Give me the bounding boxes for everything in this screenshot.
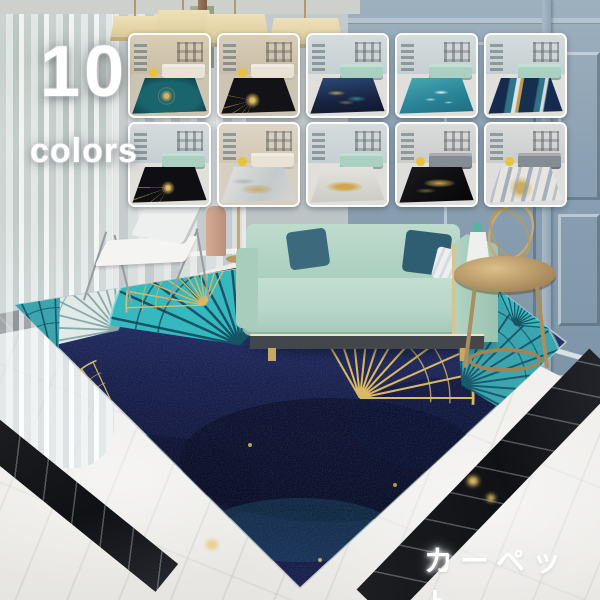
chair-leg	[196, 228, 211, 301]
lamp-cord	[234, 0, 236, 15]
thumb-chair	[416, 157, 425, 166]
thumb-chair	[238, 68, 247, 77]
thumb-wall-art	[177, 131, 204, 150]
thumb-wall-art	[444, 42, 471, 61]
variant-thumbnail-4	[395, 33, 478, 118]
thumb-wall-art	[444, 131, 471, 150]
lamp-cord	[304, 0, 306, 19]
thumb-sofa	[251, 153, 294, 168]
thumb-wall-art	[355, 42, 382, 61]
thumb-rug	[399, 167, 473, 203]
thumb-rug	[132, 167, 206, 203]
variant-thumbnail-9	[395, 122, 478, 207]
variant-thumbnail-grid	[128, 33, 568, 207]
thumb-window	[223, 130, 236, 161]
thumb-window	[401, 130, 414, 161]
thumb-sofa	[340, 64, 383, 79]
thumb-wall-art	[266, 42, 293, 61]
variant-thumbnail-3	[306, 33, 389, 118]
sofa-seat	[242, 278, 470, 336]
thumb-wall-art	[533, 42, 560, 61]
variant-thumbnail-6	[128, 122, 211, 207]
thumb-sofa	[429, 153, 472, 168]
thumb-rug	[399, 78, 473, 114]
variant-thumbnail-5	[484, 33, 567, 118]
variant-thumbnail-8	[306, 122, 389, 207]
thumb-sofa	[251, 64, 294, 79]
thumb-sofa	[340, 153, 383, 168]
floor-light-glint	[486, 494, 496, 502]
thumb-rug	[310, 167, 384, 203]
thumb-window	[490, 130, 503, 161]
variant-thumbnail-10	[484, 122, 567, 207]
color-count-badge: 10 colors	[30, 36, 138, 171]
teal-pillow	[286, 227, 331, 270]
variant-thumbnail-2	[217, 33, 300, 118]
floor-light-glint	[466, 476, 480, 486]
table-top	[454, 256, 556, 292]
thumb-rug	[221, 167, 295, 203]
accent-chair	[84, 198, 216, 308]
thumb-sofa	[162, 153, 205, 168]
thumb-sofa	[162, 64, 205, 79]
thumb-sofa	[429, 64, 472, 79]
lamp-cord	[182, 0, 184, 11]
product-caption: カーペット	[424, 538, 600, 600]
variant-thumbnail-7	[217, 122, 300, 207]
thumb-rug	[221, 78, 295, 114]
thumb-sofa	[518, 64, 561, 79]
thumb-rug	[132, 78, 206, 114]
sofa-leg	[268, 348, 276, 361]
thumb-wall-art	[177, 42, 204, 61]
color-count-number: 10	[40, 36, 138, 108]
thumb-rug	[488, 167, 562, 203]
color-count-label: colors	[30, 132, 138, 171]
product-photo: 10 colors カーペット	[0, 0, 600, 600]
gold-side-table	[452, 196, 564, 382]
sofa-arm	[236, 248, 258, 328]
thumb-sofa	[518, 153, 561, 168]
thumb-chair	[505, 157, 514, 166]
thumb-window	[223, 41, 236, 72]
thumb-wall-art	[266, 131, 293, 150]
table-base-ring	[468, 348, 542, 372]
thumb-window	[401, 41, 414, 72]
wall-rail	[348, 18, 600, 24]
sofa-base	[250, 334, 485, 349]
floor-light-glint	[206, 540, 218, 549]
thumb-wall-art	[533, 131, 560, 150]
thumb-rug	[310, 78, 384, 114]
lamp-cord	[134, 0, 136, 17]
thumb-rug	[488, 78, 562, 114]
thumb-wall-art	[355, 131, 382, 150]
thumb-chair	[149, 68, 158, 77]
thumb-window	[312, 41, 325, 72]
thumb-window	[490, 41, 503, 72]
variant-thumbnail-1	[128, 33, 211, 118]
thumb-chair	[238, 157, 247, 166]
thumb-window	[312, 130, 325, 161]
